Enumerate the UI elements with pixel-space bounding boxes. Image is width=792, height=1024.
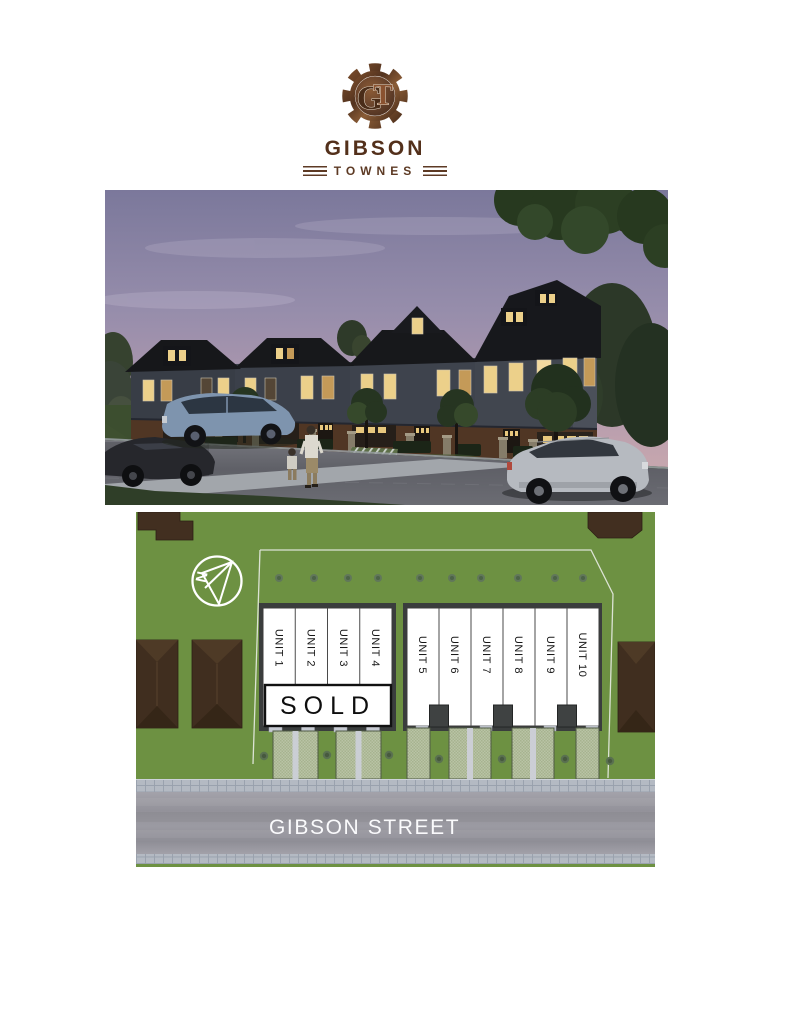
unit-label: UNIT 2 [305, 629, 317, 667]
neighbor-building [588, 512, 642, 538]
sidewalk-bottom [136, 854, 655, 864]
hero-scene [105, 190, 668, 505]
driveway [576, 728, 599, 779]
unit-label: UNIT 4 [369, 629, 381, 667]
unit-label: UNIT 10 [576, 633, 588, 678]
hero-rendering [105, 190, 668, 505]
unit-label: UNIT 6 [448, 636, 460, 674]
street-road: GIBSON STREET [136, 792, 655, 854]
unit-label: UNIT 8 [512, 636, 524, 674]
sidewalk-edge [136, 779, 655, 780]
driveway [407, 728, 430, 779]
sold-label: SOLD [280, 692, 376, 720]
unit-label: UNIT 9 [544, 636, 556, 674]
brand-subname-row: TOWNES [263, 164, 487, 178]
triple-rule-left-icon [303, 166, 327, 176]
street-label: GIBSON STREET [269, 816, 460, 839]
neighbor-building [618, 642, 655, 732]
page: G T GIBSON TOWNES [0, 0, 792, 1024]
triple-rule-right-icon [423, 166, 447, 176]
neighbor-building [192, 640, 242, 728]
brand-name: GIBSON [263, 137, 487, 161]
site-plan: UNIT 1UNIT 2UNIT 3UNIT 4UNIT 5UNIT 6UNIT… [136, 512, 655, 867]
brand-subname: TOWNES [334, 164, 416, 178]
grass-strip-bottom [136, 864, 655, 867]
unit-label: UNIT 1 [272, 629, 284, 667]
unit-label: UNIT 7 [480, 636, 492, 674]
neighbor-building [136, 640, 178, 728]
brand-logo: G T GIBSON TOWNES [263, 60, 487, 178]
gear-monogram-icon: G T [339, 60, 411, 132]
monogram-letter-t: T [373, 80, 393, 112]
site-plan-map: UNIT 1UNIT 2UNIT 3UNIT 4UNIT 5UNIT 6UNIT… [136, 512, 655, 867]
unit-label: UNIT 5 [416, 636, 428, 674]
unit-label: UNIT 3 [337, 629, 349, 667]
sold-banner: SOLD [265, 685, 391, 726]
sidewalk-top [136, 779, 655, 792]
